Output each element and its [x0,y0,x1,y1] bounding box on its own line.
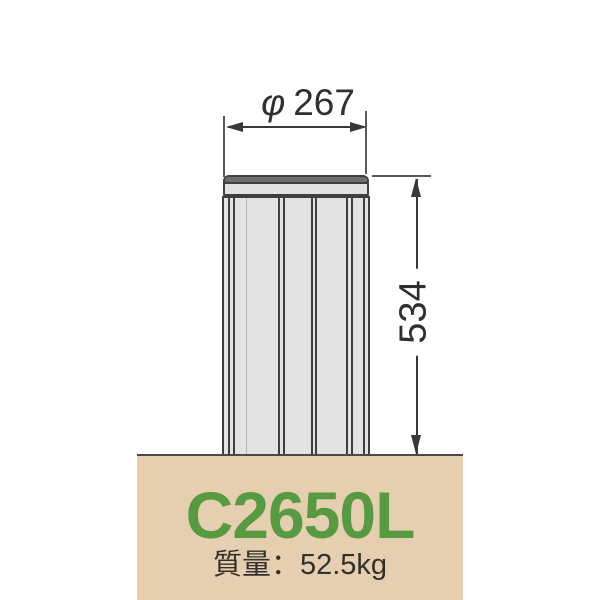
height-ext-line [372,175,431,177]
arrowhead-up-icon [411,178,421,197]
arrowhead-down-icon [411,435,421,454]
arrowhead-right-icon [350,122,367,132]
diameter-ext-line-right [365,111,367,174]
flute-line [351,198,353,454]
product-dimension-diagram: φ267 534 C2650L 質量：52.5kg [0,0,600,600]
diameter-dim-line [228,126,364,128]
height-label: 534 [393,268,436,355]
flute-line [278,198,280,454]
flute-line [283,198,285,454]
cap-top-face [225,177,367,184]
diameter-value: 267 [293,82,355,123]
flute-line [246,198,247,454]
arrowhead-left-icon [226,122,243,132]
weight-label: 質量：52.5kg [137,550,463,580]
flute-line [315,198,317,454]
flute-line [311,198,313,454]
bollard-cap [223,175,369,196]
flute-line [233,198,235,454]
phi-symbol: φ [261,82,293,123]
diameter-label: φ267 [208,82,408,124]
model-label: C2650L [137,456,463,548]
ground-block: C2650L 質量：52.5kg [137,454,463,600]
flute-line [363,198,365,454]
flute-line [346,198,348,454]
diameter-ext-line-left [223,116,225,177]
flute-line [228,198,230,454]
bollard-body [222,196,370,454]
